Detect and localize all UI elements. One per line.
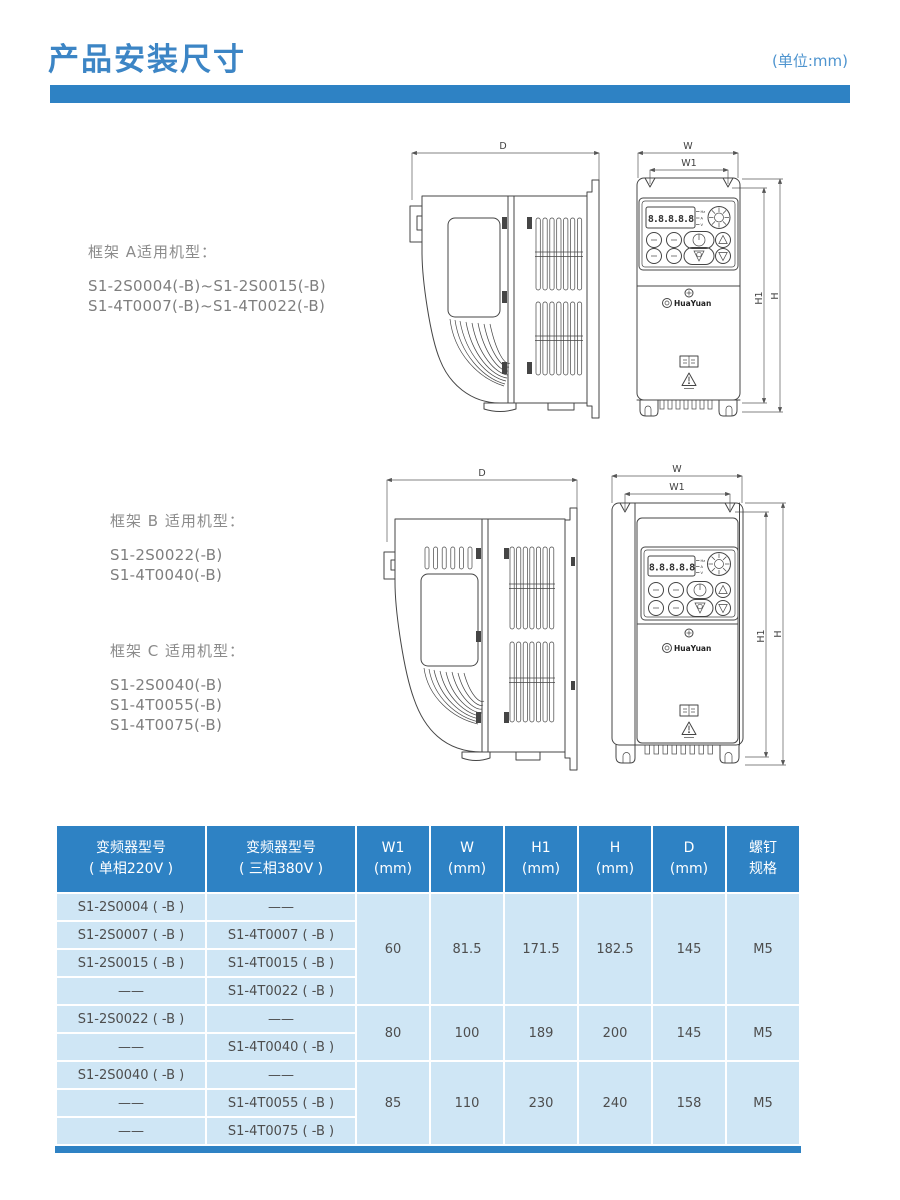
model-220-cell: S1-2S0007 ( -B ) — [56, 921, 206, 949]
indicator-v: V — [701, 223, 704, 227]
indicator-a: A — [701, 217, 704, 221]
frame-a-models: S1-2S0004(-B)~S1-2S0015(-B) S1-4T0007(-B… — [88, 276, 326, 316]
down-button — [716, 601, 731, 616]
page-title: 产品安装尺寸 — [48, 34, 246, 79]
header-w: W(mm) — [430, 825, 504, 893]
indicator-hz: Hz — [701, 559, 706, 563]
brand-logo: HuaYuan — [663, 299, 712, 309]
keypad-panel — [639, 198, 738, 270]
manual-book-icon — [680, 705, 698, 716]
dim-w1: W1 — [625, 482, 730, 510]
model-220-cell: S1-2S0040 ( -B ) — [56, 1061, 206, 1089]
dim-d-cell: 145 — [652, 893, 726, 1005]
frame-c-model-3: S1-4T0075(-B) — [110, 715, 223, 735]
frame-b-model-1: S1-2S0022(-B) — [110, 545, 223, 565]
vent-grille-bottom — [509, 642, 555, 722]
frame-c-model-2: S1-4T0055(-B) — [110, 695, 223, 715]
frame-c-label: 框架 C 适用机型： — [110, 640, 245, 661]
frame-b-model-2: S1-4T0040(-B) — [110, 565, 223, 585]
seven-segment-display: 8.8.8.8.8 Hz A V — [646, 207, 705, 228]
potentiometer-knob — [708, 207, 730, 229]
stop-button — [684, 248, 714, 265]
frame-bc-side-view-drawing: D — [378, 462, 598, 777]
cable-fan-lines — [424, 668, 484, 724]
inverter-side-body — [410, 180, 599, 418]
dim-w-cell: 100 — [430, 1005, 504, 1061]
dim-h1: H1 — [732, 188, 767, 403]
brand-name: HuaYuan — [674, 299, 711, 308]
vent-grille-top — [509, 547, 555, 629]
header-model-220: 变频器型号( 单相220V ) — [56, 825, 206, 893]
warning-triangle-icon — [682, 373, 696, 389]
vent-grille-top — [535, 218, 583, 290]
manual-book-icon — [680, 356, 698, 367]
model-380-cell: S1-4T0022 ( -B ) — [206, 977, 356, 1005]
model-380-cell: S1-4T0007 ( -B ) — [206, 921, 356, 949]
indicator-a: A — [701, 565, 704, 569]
dim-w-cell: 110 — [430, 1061, 504, 1145]
table-row: S1-2S0040 ( -B ) —— 85 110 230 240 158 M… — [56, 1061, 800, 1089]
dim-w1: W1 — [650, 158, 728, 184]
header-d: D(mm) — [652, 825, 726, 893]
frame-b-models: S1-2S0022(-B) S1-4T0040(-B) — [110, 545, 223, 585]
model-380-cell: S1-4T0075 ( -B ) — [206, 1117, 356, 1145]
model-380-cell: —— — [206, 893, 356, 921]
down-button — [716, 249, 731, 264]
model-220-cell: —— — [56, 1117, 206, 1145]
dim-label-w: W — [672, 464, 682, 475]
bottom-terminal-comb — [637, 400, 740, 416]
seven-segment-display: 8.8.8.8.8 Hz A V — [648, 556, 705, 576]
cable-fan-lines — [450, 319, 510, 386]
display-digits: 8.8.8.8.8 — [648, 214, 694, 225]
dim-d-cell: 145 — [652, 1005, 726, 1061]
inverter-front-body: 8.8.8.8.8 Hz A V — [637, 178, 740, 416]
top-vent-slots — [425, 547, 472, 569]
dim-w1-cell: 60 — [356, 893, 430, 1005]
model-220-cell: S1-2S0004 ( -B ) — [56, 893, 206, 921]
up-button — [716, 583, 731, 598]
dim-label-h1: H1 — [756, 629, 767, 642]
inverter-front-body: 8.8.8.8.8 Hz A V — [612, 503, 743, 763]
screw-spec-cell: M5 — [726, 893, 800, 1005]
table-row: S1-2S0022 ( -B ) —— 80 100 189 200 145 M… — [56, 1005, 800, 1033]
brand-name: HuaYuan — [674, 644, 711, 653]
frame-a-label: 框架 A适用机型： — [88, 241, 217, 262]
model-220-cell: —— — [56, 1033, 206, 1061]
model-220-cell: —— — [56, 1089, 206, 1117]
dim-label-w: W — [683, 141, 693, 152]
dimension-table: 变频器型号( 单相220V ) 变频器型号( 三相380V ) W1(mm) W… — [55, 824, 801, 1153]
stop-button — [687, 600, 713, 617]
frame-a-model-2: S1-4T0007(-B)~S1-4T0022(-B) — [88, 296, 326, 316]
dim-h1-cell: 189 — [504, 1005, 578, 1061]
dim-w1-cell: 80 — [356, 1005, 430, 1061]
model-380-cell: S1-4T0015 ( -B ) — [206, 949, 356, 977]
model-220-cell: S1-2S0015 ( -B ) — [56, 949, 206, 977]
model-380-cell: S1-4T0055 ( -B ) — [206, 1089, 356, 1117]
dim-h1-cell: 171.5 — [504, 893, 578, 1005]
dim-label-d: D — [499, 141, 506, 152]
dim-w1-cell: 85 — [356, 1061, 430, 1145]
table-bottom-bar — [55, 1146, 801, 1153]
title-accent-bar — [50, 85, 850, 103]
keypad-buttons — [647, 232, 731, 265]
screw-spec-cell: M5 — [726, 1061, 800, 1145]
indicator-v: V — [701, 571, 704, 575]
keypad-buttons — [649, 582, 731, 617]
frame-b-label: 框架 B 适用机型： — [110, 510, 245, 531]
dim-h-cell: 182.5 — [578, 893, 652, 1005]
vent-grille-bottom — [535, 302, 583, 375]
mount-foot-right — [719, 400, 737, 416]
bottom-terminal-comb — [616, 745, 739, 763]
mount-foot-right — [720, 745, 739, 763]
model-380-cell: —— — [206, 1061, 356, 1089]
unit-label: (单位:mm) — [772, 50, 848, 71]
dim-d: D — [412, 141, 599, 200]
header-h: H(mm) — [578, 825, 652, 893]
frame-a-side-view-drawing: D — [400, 140, 610, 425]
model-220-cell: S1-2S0022 ( -B ) — [56, 1005, 206, 1033]
model-220-cell: —— — [56, 977, 206, 1005]
inverter-side-body — [384, 508, 577, 770]
dim-label-d: D — [478, 468, 485, 479]
mount-foot-left — [616, 745, 635, 763]
latch-clips — [502, 217, 532, 374]
model-380-cell: —— — [206, 1005, 356, 1033]
display-digits: 8.8.8.8.8 — [649, 563, 695, 574]
dim-h1-cell: 230 — [504, 1061, 578, 1145]
latch-clips — [476, 548, 575, 723]
dim-label-h1: H1 — [754, 291, 765, 304]
header-model-380: 变频器型号( 三相380V ) — [206, 825, 356, 893]
up-button — [716, 233, 731, 248]
frame-a-model-1: S1-2S0004(-B)~S1-2S0015(-B) — [88, 276, 326, 296]
cover-screw-icon — [685, 289, 693, 297]
dim-label-h: H — [773, 630, 784, 637]
frame-a-front-view-drawing: W W1 H H1 8.8.8.8.8 — [620, 140, 798, 425]
dim-h-cell: 200 — [578, 1005, 652, 1061]
indicator-hz: Hz — [701, 210, 706, 214]
header-screw: 螺钉规格 — [726, 825, 800, 893]
dim-h1: H1 — [735, 512, 769, 757]
run-button — [684, 232, 714, 249]
dim-h-cell: 240 — [578, 1061, 652, 1145]
potentiometer-knob — [708, 553, 731, 576]
brand-logo: HuaYuan — [663, 644, 712, 654]
dim-label-h: H — [770, 292, 781, 299]
front-cover — [637, 518, 738, 743]
cover-screw-icon — [685, 629, 693, 637]
screw-spec-cell: M5 — [726, 1005, 800, 1061]
frame-bc-front-view-drawing: W W1 H H1 — [600, 462, 795, 777]
dim-label-w1: W1 — [669, 482, 684, 493]
mount-foot-left — [640, 400, 658, 416]
dim-w-cell: 81.5 — [430, 893, 504, 1005]
dim-d-cell: 158 — [652, 1061, 726, 1145]
warning-triangle-icon — [682, 722, 696, 738]
header-w1: W1(mm) — [356, 825, 430, 893]
table-row: S1-2S0004 ( -B ) —— 60 81.5 171.5 182.5 … — [56, 893, 800, 921]
frame-c-model-1: S1-2S0040(-B) — [110, 675, 223, 695]
run-button — [687, 582, 713, 599]
header-h1: H1(mm) — [504, 825, 578, 893]
model-380-cell: S1-4T0040 ( -B ) — [206, 1033, 356, 1061]
table-header-row: 变频器型号( 单相220V ) 变频器型号( 三相380V ) W1(mm) W… — [56, 825, 800, 893]
page: 产品安装尺寸 (单位:mm) 框架 A适用机型： S1-2S0004(-B)~S… — [0, 0, 900, 1200]
frame-c-models: S1-2S0040(-B) S1-4T0055(-B) S1-4T0075(-B… — [110, 675, 223, 735]
dim-label-w1: W1 — [681, 158, 696, 169]
